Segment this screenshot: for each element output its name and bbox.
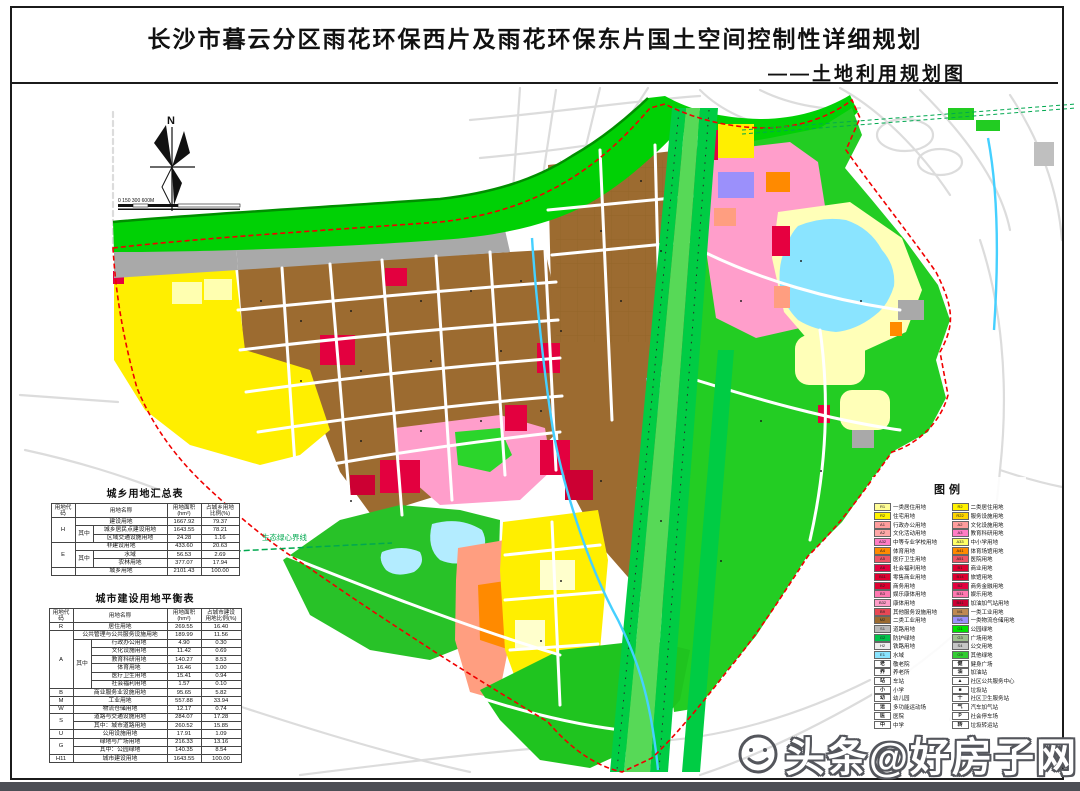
legend-item-label: 中等专业学校用地 [893,538,937,546]
legend-item: R2住宅用地 [874,512,947,521]
legend-item-label: 一类工业用地 [971,608,1004,616]
legend-item: ■垃圾站 [952,685,1025,694]
table-cell: 4.90 [167,639,201,647]
legend-item: R1一类居住用地 [874,503,947,512]
table-cell: 13.16 [201,738,241,746]
table-cell: 医疗卫生用地 [91,672,167,680]
table-cell: 216.33 [167,738,201,746]
legend-item-label: 公园绿地 [971,625,993,633]
legend-item-label: 其他服务设施用地 [893,608,937,616]
legend-item-label: 加油站 [971,668,988,676]
legend-item: R22服务设施用地 [952,512,1025,521]
legend-item: G9其他绿地 [952,651,1025,660]
watermark-face-icon [737,733,779,775]
legend-color-swatch: A4 [874,547,891,555]
legend-item-label: 医院用地 [971,555,993,563]
legend-item: G1公园绿地 [952,625,1025,634]
legend-item-label: 中小学用地 [971,538,999,546]
legend-item-label: 社会停车场 [971,712,999,720]
legend-item: 养养老所 [874,668,947,677]
legend-item-label: 旅馆用地 [971,573,993,581]
legend-color-swatch: G9 [952,651,969,659]
table-cell: 商业服务业设施用地 [73,689,167,697]
legend-column-left: R1一类居住用地R2住宅用地A1行政办公用地A2文化活动用地A32中等专业学校用… [874,503,947,729]
legend-item: B32康体用地 [874,599,947,608]
table-header-cell: 用地面积 (hm²) [167,504,201,518]
table-cell: R [49,623,73,631]
legend-item: B3娱乐康体用地 [874,590,947,599]
table-cell: 33.94 [201,697,241,705]
table-cell: 道路与交通设施用地 [73,713,167,721]
legend-item: B1商业用地 [952,564,1025,573]
table-cell: 100.00 [201,567,239,575]
legend-symbol-icon: 油 [952,668,969,676]
table-row: 其中行政办公用地4.900.30 [49,639,241,647]
table-header-cell: 用地名称 [75,504,167,518]
table-cell: 0.74 [201,705,241,713]
legend-item-label: 公交用地 [971,642,993,650]
legend-item: R2二类居住用地 [952,503,1025,512]
table-cell: S [49,713,73,730]
table-row: E非建设用地433.6020.63 [51,542,239,550]
legend-item-label: 娱乐康体用地 [893,590,926,598]
table-row: 其中城乡居民点建设用地1643.5578.21 [51,526,239,534]
legend-item-label: 零售商业用地 [893,573,926,581]
table-cell: 12.17 [167,705,201,713]
table-row: 其中水域56.532.69 [51,551,239,559]
table-cell: 物流仓储用地 [73,705,167,713]
legend-item-label: 汽车加气站 [971,703,999,711]
table-header-cell: 用地面积 (hm²) [167,609,201,623]
table-cell: 17.28 [201,713,241,721]
legend-item: 十社区卫生服务站 [952,694,1025,703]
table-header-cell: 占城乡用地 比例(%) [201,504,239,518]
legend-color-swatch: A6 [874,564,891,572]
legend-color-swatch: A41 [952,547,969,555]
table-row: B商业服务业设施用地95.655.82 [49,689,241,697]
legend-color-swatch: E1 [874,651,891,659]
legend-color-swatch: S4 [952,642,969,650]
legend-item: E1水域 [874,651,947,660]
legend-symbol-icon: 站 [874,677,891,685]
green-heart-label: 生态绿心界线 [262,532,307,542]
table-cell: 0.94 [201,672,241,680]
legend-item-label: 健身广场 [971,660,993,668]
legend-color-swatch: A2 [952,521,969,529]
table-header-row: 用地代码用地名称用地面积 (hm²)占城市建设 用地比例(%) [49,609,241,623]
table-cell: 其中 [75,551,93,568]
table-cell: 260.52 [167,722,201,730]
legend-color-swatch: R2 [952,503,969,511]
legend-item: B31娱乐用地 [952,590,1025,599]
table-cell: 24.28 [167,534,201,542]
page-subtitle: ——土地利用规划图 [12,59,1058,86]
legend-item: B41加油加气站用地 [952,599,1025,608]
table-row: U公用设施用地17.911.09 [49,730,241,738]
legend-item-label: 其他绿地 [971,651,993,659]
legend-item-label: 医疗卫生用地 [893,555,926,563]
table-header-cell: 占城市建设 用地比例(%) [201,609,241,623]
table-cell: 100.00 [201,755,241,763]
table-cell: 1.09 [201,730,241,738]
table-header-cell: 用地代码 [49,609,73,623]
legend-item: A1行政办公用地 [874,520,947,529]
legend-color-swatch: G2 [874,634,891,642]
table-cell: 城市建设用地 [73,755,167,763]
summary-table: 用地代码用地名称用地面积 (hm²)占城乡用地 比例(%)H建设用地1667.9… [38,503,252,576]
legend-item: S4公交用地 [952,642,1025,651]
table-cell: 体育用地 [91,664,167,672]
legend-item: 运多功能运动场 [874,703,947,712]
legend-color-swatch: M1 [952,608,969,616]
legend-item-label: 康体用地 [893,599,915,607]
legend-item: G2防护绿地 [874,633,947,642]
legend-item-label: 行政办公用地 [893,521,926,529]
table-cell: 1643.55 [167,526,201,534]
table-cell: 其中 [75,526,93,543]
legend-color-swatch: B2 [874,582,891,590]
legend-color-swatch: G1 [952,625,969,633]
table-row: H11城市建设用地1643.55100.00 [49,755,241,763]
table-cell: 8.54 [201,746,241,754]
legend-item-label: 文化活动用地 [893,529,926,537]
legend-item-label: 加油加气站用地 [971,599,1010,607]
legend-panel: 图例 R1一类居住用地R2住宅用地A1行政办公用地A2文化活动用地A32中等专业… [872,477,1026,733]
legend-item-label: 多功能运动场 [893,703,926,711]
legend-item-label: 水域 [893,651,904,659]
legend-item: G3广场用地 [952,633,1025,642]
legend-color-swatch: B2 [952,582,969,590]
legend-item: A2文化设施用地 [952,520,1025,529]
table-cell: H11 [49,755,73,763]
legend-color-swatch: R2 [874,512,891,520]
table-cell: 1.57 [167,680,201,688]
table-cell: 15.41 [167,672,201,680]
table-cell: 95.65 [167,689,201,697]
table-row: A公共管理与公共服务设施用地189.9911.56 [49,631,241,639]
table-cell: 11.56 [201,631,241,639]
table-cell: 区域交通设施用地 [93,534,167,542]
table-row: S道路与交通设施用地284.0717.28 [49,713,241,721]
table-cell: 居住用地 [73,623,167,631]
watermark: 头条@好房子网 [737,725,1078,783]
legend-symbol-icon: 气 [952,703,969,711]
legend-symbol-icon: 幼 [874,694,891,702]
legend-item: A33中小学用地 [952,538,1025,547]
table-cell: E [51,542,75,567]
table-row: 其中：公园绿地140.358.54 [49,746,241,754]
legend-color-swatch: W1 [952,616,969,624]
table-cell: 城乡用地 [75,567,167,575]
legend-symbol-icon: 老 [874,660,891,668]
legend-title: 图例 [874,481,1024,497]
legend-color-swatch: B1 [952,564,969,572]
legend-color-swatch: S1 [874,625,891,633]
table-cell: 绿地与广场用地 [73,738,167,746]
legend-item: ▲社区公共服务中心 [952,677,1025,686]
legend-item-label: 道路用地 [893,625,915,633]
table-cell: 社会福利用地 [91,680,167,688]
legend-symbol-icon: 小 [874,686,891,694]
scale-label: 0 150 300 600M [118,198,154,204]
legend-item: H2铁路用地 [874,642,947,651]
legend-item: B2商务金融用地 [952,581,1025,590]
table-cell: 17.91 [167,730,201,738]
legend-item-label: 广场用地 [971,634,993,642]
legend-item: S1道路用地 [874,625,947,634]
legend-color-swatch: B3 [874,590,891,598]
planning-table: 用地代码用地名称用地面积 (hm²)占城市建设 用地比例(%)R居住用地269.… [49,608,242,763]
legend-item-label: 防护绿地 [893,634,915,642]
legend-item-label: 社区卫生服务站 [971,694,1010,702]
legend-item-label: 住宅用地 [893,512,915,520]
legend-color-swatch: A1 [874,521,891,529]
table-cell: 建设用地 [75,518,167,526]
legend-item-label: 商务用地 [893,582,915,590]
legend-item-label: 社区公共服务中心 [971,677,1015,685]
table-header-cell: 用地名称 [73,609,167,623]
title-block: 长沙市暮云分区雨花环保西片及雨花环保东片国土空间控制性详细规划 ——土地利用规划… [12,8,1058,84]
legend-item: 油加油站 [952,668,1025,677]
watermark-text: 头条@好房子网 [785,725,1078,783]
legend-symbol-icon: 养 [874,668,891,676]
table-row: H建设用地1667.9279.37 [51,518,239,526]
legend-item: B14旅馆用地 [952,573,1025,582]
table-cell: A [49,631,73,689]
legend-symbol-icon: P [952,712,969,720]
legend-item: B2商务用地 [874,581,947,590]
legend-symbol-icon: 医 [874,712,891,720]
legend-color-swatch: A3 [952,529,969,537]
legend-color-swatch: A2 [874,529,891,537]
legend-color-swatch: A51 [952,555,969,563]
table-header-cell: 用地代码 [51,504,75,518]
legend-symbol-icon: ■ [952,686,969,694]
table-cell: U [49,730,73,738]
balance-table-card: 城市建设用地平衡表 用地代码用地名称用地面积 (hm²)占城市建设 用地比例(%… [36,590,254,763]
compass: N [150,115,195,211]
legend-item: B9其他服务设施用地 [874,607,947,616]
legend-color-swatch: B11 [874,573,891,581]
legend-item: A51医院用地 [952,555,1025,564]
legend-item-label: 车站 [893,677,904,685]
table-cell: 11.42 [167,647,201,655]
legend-item: M1一类工业用地 [952,607,1025,616]
table-cell: 56.53 [167,551,201,559]
table-cell: 其中：城市道路用地 [73,722,167,730]
table-row: G绿地与广场用地216.3313.16 [49,738,241,746]
table-cell: 433.60 [167,542,201,550]
summary-table-title: 城乡用地汇总表 [38,485,252,500]
table-cell: 377.07 [167,559,201,567]
legend-symbol-icon: 运 [874,703,891,711]
table-cell: 1.16 [201,534,239,542]
table-cell: 城乡居民点建设用地 [93,526,167,534]
legend-item: A2文化活动用地 [874,529,947,538]
table-cell: 水域 [93,551,167,559]
legend-item-label: 教育科研用地 [971,529,1004,537]
table-row: 城乡用地2101.43100.00 [51,567,239,575]
legend-item: 老敬老院 [874,659,947,668]
legend-color-swatch: G3 [952,634,969,642]
table-cell: M [49,697,73,705]
legend-color-swatch: B32 [874,599,891,607]
legend-item-label: 体育场馆用地 [971,547,1004,555]
table-cell: 其中 [73,639,91,689]
legend-item: A41体育场馆用地 [952,546,1025,555]
legend-color-swatch: M2 [874,616,891,624]
table-cell: 189.99 [167,631,201,639]
table-cell: 15.85 [201,722,241,730]
legend-item-label: 二类工业用地 [893,616,926,624]
table-cell: 16.40 [201,623,241,631]
legend-item: 小小学 [874,685,947,694]
legend-column-right: R2二类居住用地R22服务设施用地A2文化设施用地A3教育科研用地A33中小学用… [952,503,1025,729]
legend-item-label: 社会福利用地 [893,564,926,572]
table-cell: 557.88 [167,697,201,705]
table-cell: 0.69 [201,647,241,655]
table-cell: 1.00 [201,664,241,672]
table-cell: 其中：公园绿地 [73,746,167,754]
table-cell: 78.21 [201,526,239,534]
legend-item: A3教育科研用地 [952,529,1025,538]
legend-item: 健健身广场 [952,659,1025,668]
page-title: 长沙市暮云分区雨花环保西片及雨花环保东片国土空间控制性详细规划 [12,20,1058,54]
table-row: W物流仓储用地12.170.74 [49,705,241,713]
legend-item-label: 娱乐用地 [971,590,993,598]
table-cell: 8.53 [201,656,241,664]
legend-symbol-icon: 健 [952,660,969,668]
table-cell: 工业用地 [73,697,167,705]
legend-item-label: 垃圾站 [971,686,988,694]
legend-item-label: 养老所 [893,668,910,676]
legend-color-swatch: R1 [874,503,891,511]
summary-table-card: 城乡用地汇总表 用地代码用地名称用地面积 (hm²)占城乡用地 比例(%)H建设… [38,485,252,576]
table-cell: 140.35 [167,746,201,754]
legend-item: 医医院 [874,712,947,721]
table-cell: H [51,518,75,543]
table-cell: 2.69 [201,551,239,559]
legend-symbol-icon: 十 [952,694,969,702]
table-cell: 0.10 [201,680,241,688]
table-cell: 269.55 [167,623,201,631]
table-cell: W [49,705,73,713]
table-cell: 284.07 [167,713,201,721]
legend-item-label: 商业用地 [971,564,993,572]
legend-item: W1一类物流仓储用地 [952,616,1025,625]
legend-item-label: 服务设施用地 [971,512,1004,520]
legend-color-swatch: R22 [952,512,969,520]
legend-item: A6社会福利用地 [874,564,947,573]
legend-item-label: 一类物流仓储用地 [971,616,1015,624]
table-cell: 20.63 [201,542,239,550]
legend-color-swatch: H2 [874,642,891,650]
legend-item-label: 一类居住用地 [893,503,926,511]
legend-item-label: 小学 [893,686,904,694]
table-cell: 5.82 [201,689,241,697]
scale-bar: 0 150 300 600M [118,198,240,210]
legend-item-label: 文化设施用地 [971,521,1004,529]
table-cell: 79.37 [201,518,239,526]
table-cell: 教育科研用地 [91,656,167,664]
bottom-bar [0,782,1080,791]
legend-item-label: 商务金融用地 [971,582,1004,590]
legend-item-label: 铁路用地 [893,642,915,650]
legend-item-label: 医院 [893,712,904,720]
table-cell: 17.94 [201,559,239,567]
table-cell: 农林用地 [93,559,167,567]
legend-item: 站车站 [874,677,947,686]
table-cell: G [49,738,73,755]
legend-color-swatch: A33 [952,538,969,546]
table-cell: 公共管理与公共服务设施用地 [73,631,167,639]
legend-item: 幼幼儿园 [874,694,947,703]
table-cell: 文化设施用地 [91,647,167,655]
table-cell: 0.30 [201,639,241,647]
legend-color-swatch: B14 [952,573,969,581]
legend-item: A32中等专业学校用地 [874,538,947,547]
legend-item: 气汽车加气站 [952,703,1025,712]
table-header-row: 用地代码用地名称用地面积 (hm²)占城乡用地 比例(%) [51,504,239,518]
table-cell: 140.27 [167,656,201,664]
legend-item-label: 二类居住用地 [971,503,1004,511]
legend-item: B11零售商业用地 [874,573,947,582]
legend-item: P社会停车场 [952,712,1025,721]
legend-item: M2二类工业用地 [874,616,947,625]
legend-color-swatch: A32 [874,538,891,546]
table-cell: 2101.43 [167,567,201,575]
table-cell: 16.46 [167,664,201,672]
legend-color-swatch: A5 [874,555,891,563]
table-cell: 公用设施用地 [73,730,167,738]
legend-item-label: 幼儿园 [893,694,910,702]
table-row: 其中：城市道路用地260.5215.85 [49,722,241,730]
balance-table: 用地代码用地名称用地面积 (hm²)占城市建设 用地比例(%)R居住用地269.… [36,608,254,763]
balance-table-title: 城市建设用地平衡表 [36,590,254,605]
legend-color-swatch: B31 [952,590,969,598]
table-row: R居住用地269.5516.40 [49,623,241,631]
legend-item: A5医疗卫生用地 [874,555,947,564]
table-cell [51,567,75,575]
table-cell: 1667.92 [167,518,201,526]
legend-item-label: 敬老院 [893,660,910,668]
legend-color-swatch: B41 [952,599,969,607]
legend-item-label: 体育用地 [893,547,915,555]
table-cell: B [49,689,73,697]
table-row: M工业用地557.8833.94 [49,697,241,705]
table-cell: 非建设用地 [75,542,167,550]
legend-color-swatch: B9 [874,608,891,616]
planning-table: 用地代码用地名称用地面积 (hm²)占城乡用地 比例(%)H建设用地1667.9… [51,503,240,576]
legend-item: A4体育用地 [874,546,947,555]
north-label: N [167,115,175,127]
legend-symbol-icon: ▲ [952,677,969,685]
table-cell: 行政办公用地 [91,639,167,647]
table-cell: 1643.55 [167,755,201,763]
